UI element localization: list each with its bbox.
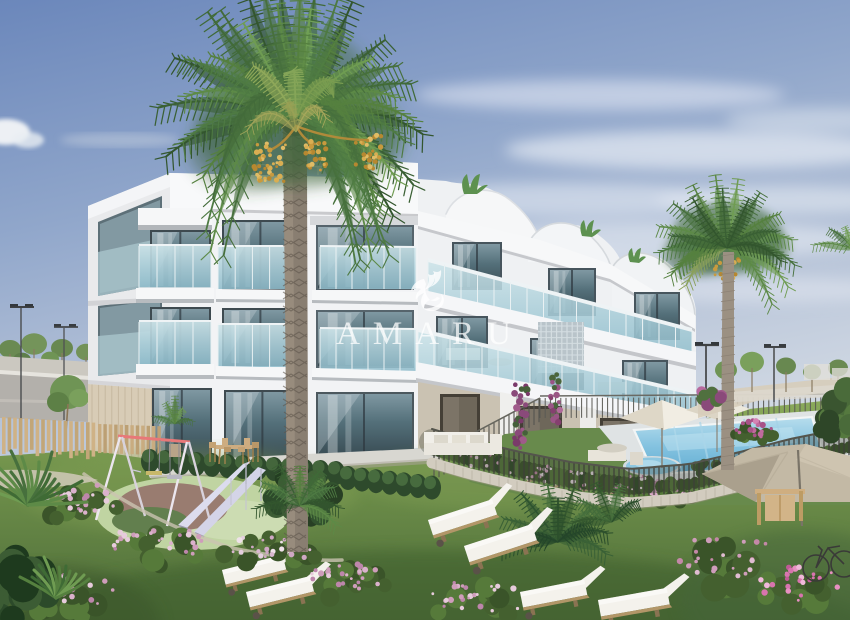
svg-text:AMARU: AMARU — [336, 316, 524, 352]
